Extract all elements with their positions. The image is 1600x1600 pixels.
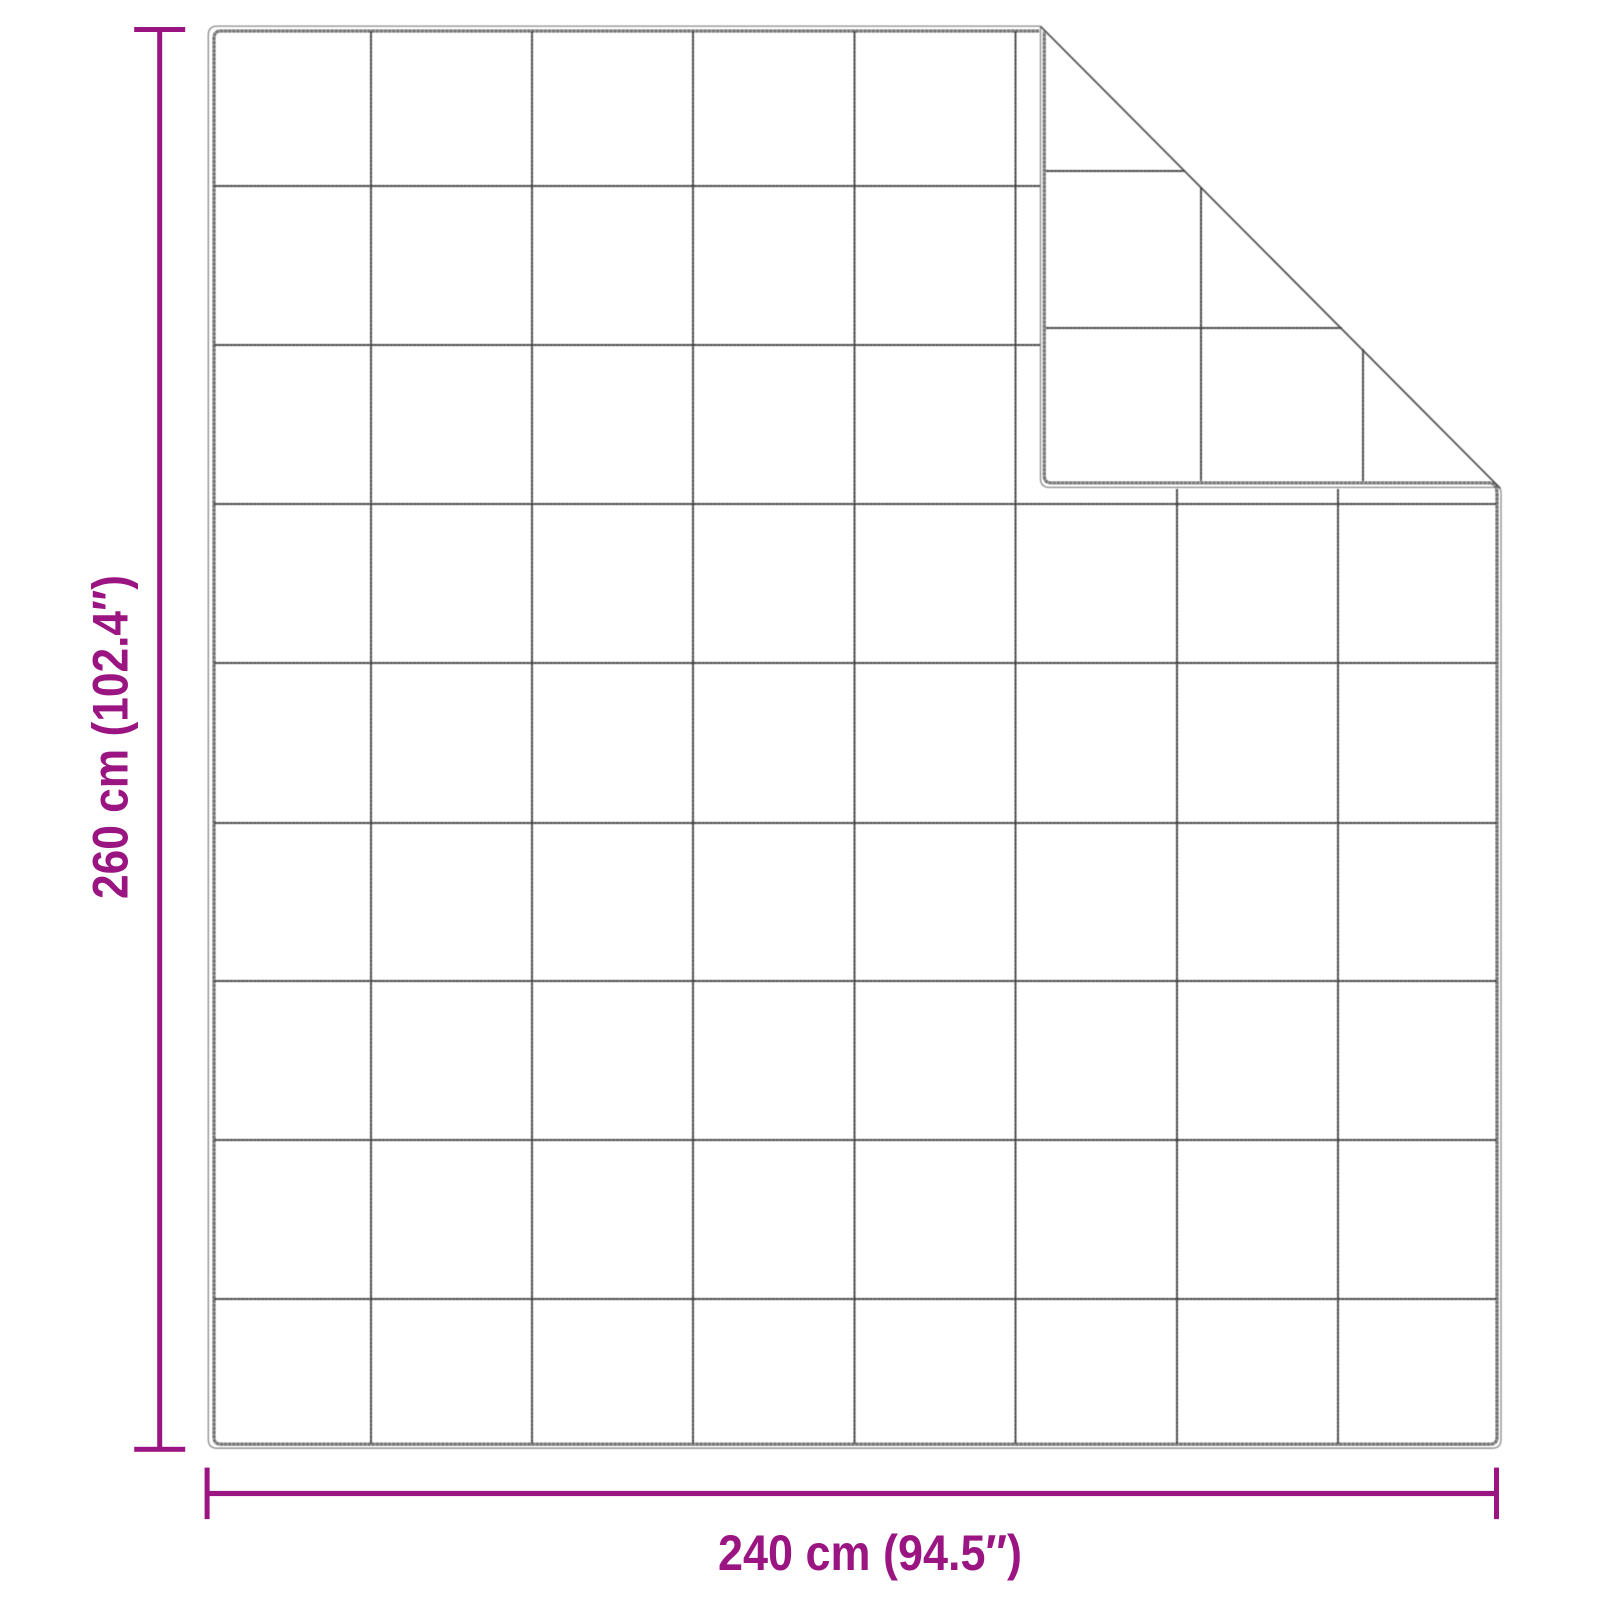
svg-text:240 cm (94.5″): 240 cm (94.5″) (718, 1525, 1022, 1581)
svg-text:260 cm (102.4″): 260 cm (102.4″) (83, 575, 139, 899)
